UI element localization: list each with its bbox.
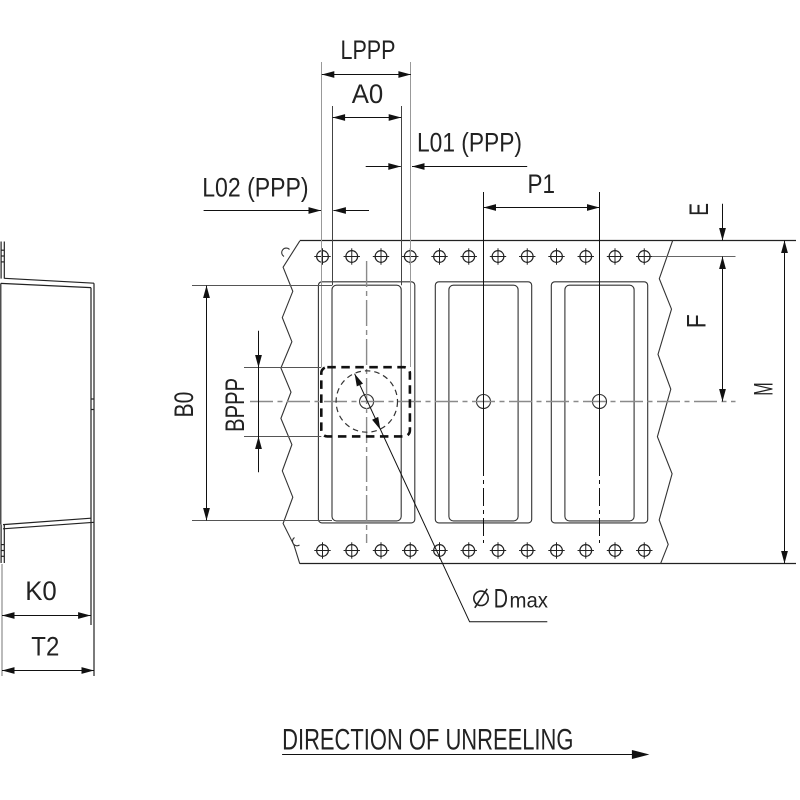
svg-text:L02 (PPP): L02 (PPP) (202, 172, 308, 202)
svg-text:P1: P1 (528, 169, 556, 199)
svg-text:D: D (494, 583, 508, 613)
svg-text:T2: T2 (31, 632, 59, 662)
svg-text:B0: B0 (169, 392, 199, 418)
svg-text:M: M (749, 382, 779, 396)
svg-text:A0: A0 (352, 79, 384, 109)
svg-text:max: max (510, 589, 549, 612)
svg-text:K0: K0 (25, 576, 57, 606)
svg-text:LPPP: LPPP (341, 35, 396, 65)
svg-text:L01 (PPP): L01 (PPP) (417, 128, 522, 158)
svg-text:F: F (682, 314, 712, 328)
svg-text:E: E (684, 203, 714, 216)
svg-text:DIRECTION OF UNREELING: DIRECTION OF UNREELING (282, 724, 573, 757)
svg-text:BPPP: BPPP (220, 378, 250, 432)
